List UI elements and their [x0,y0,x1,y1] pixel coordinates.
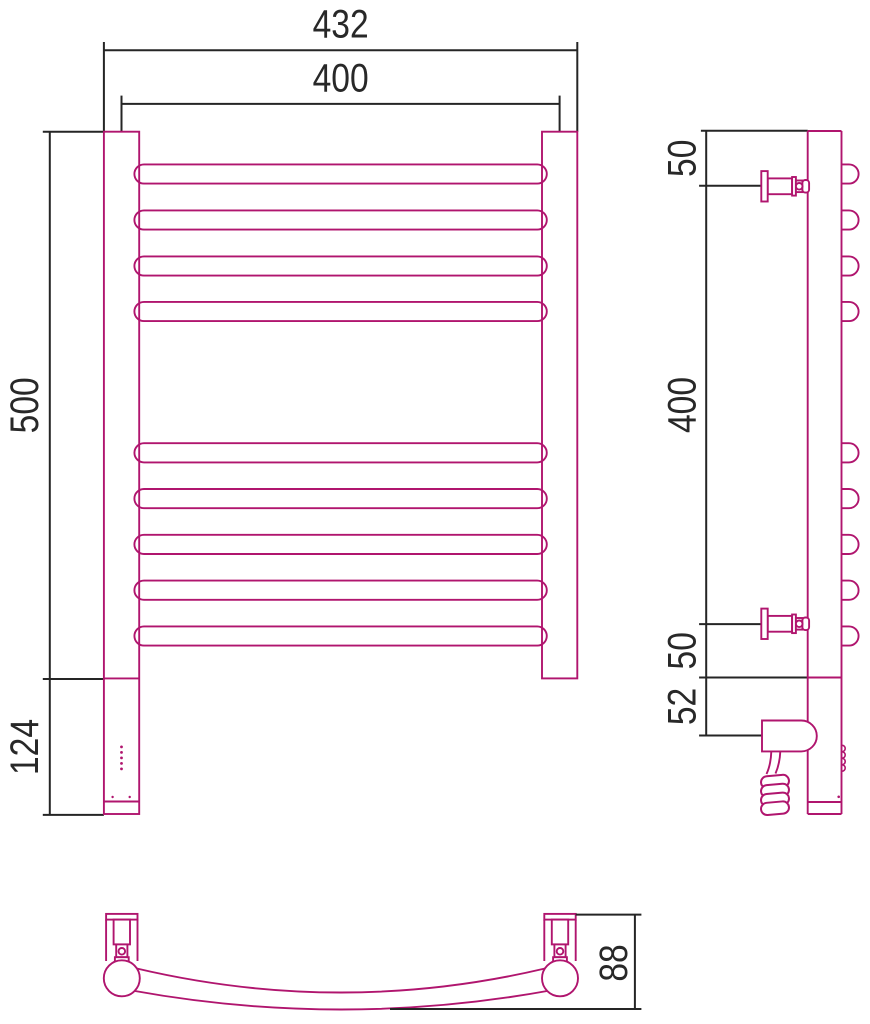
svg-text:50: 50 [660,632,704,669]
svg-text:124: 124 [2,719,46,775]
svg-text:500: 500 [2,377,46,433]
svg-text:50: 50 [660,140,704,177]
svg-text:88: 88 [591,944,635,981]
svg-text:52: 52 [660,688,704,725]
svg-text:400: 400 [313,56,369,100]
svg-text:432: 432 [313,2,369,46]
svg-text:400: 400 [660,377,704,433]
